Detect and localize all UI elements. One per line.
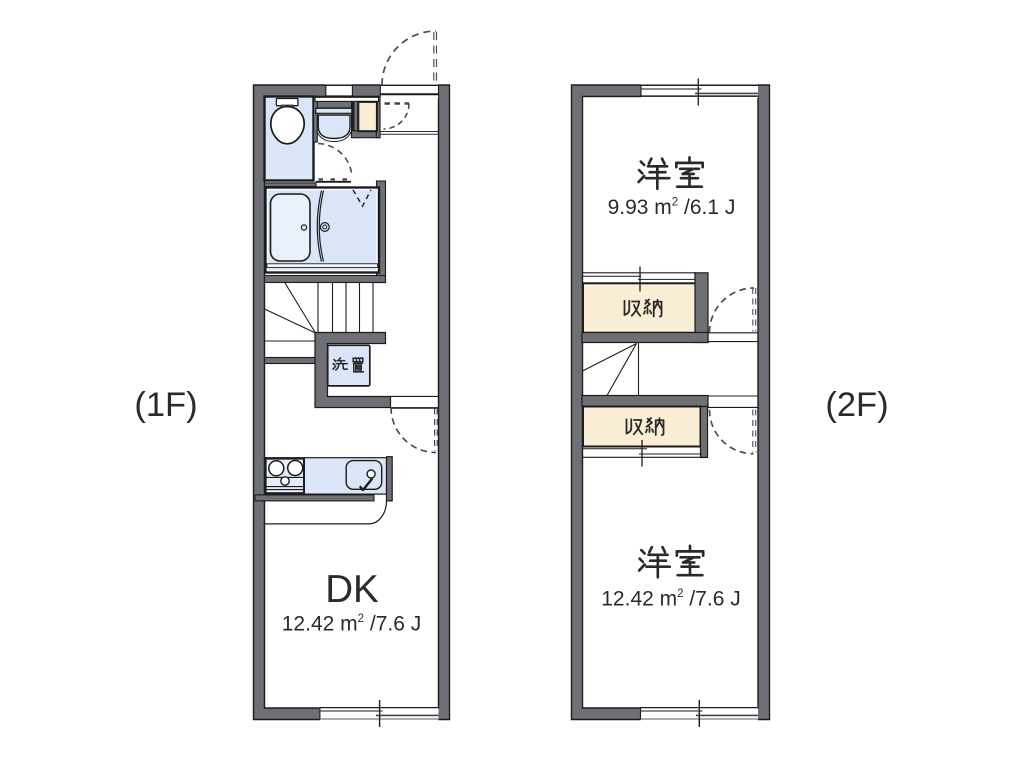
svg-text:12.42 m2 /7.6 J: 12.42 m2 /7.6 J: [601, 588, 741, 611]
svg-text:(1F): (1F): [134, 386, 197, 424]
svg-text:9.93 m2 /6.1 J: 9.93 m2 /6.1 J: [608, 196, 736, 219]
svg-text:(2F): (2F): [825, 386, 888, 424]
svg-text:12.42 m2 /7.6 J: 12.42 m2 /7.6 J: [282, 613, 422, 636]
svg-text:DK: DK: [325, 568, 379, 611]
